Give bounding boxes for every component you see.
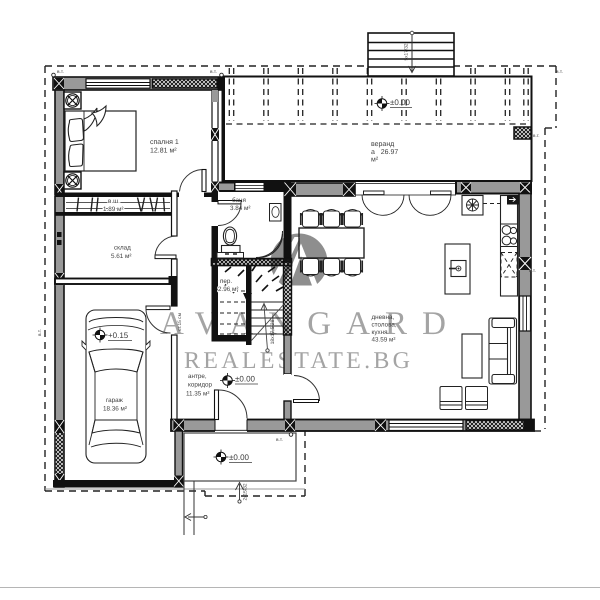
svg-text:+0.15: +0.15 xyxy=(108,331,129,340)
svg-text:±0.00: ±0.00 xyxy=(235,375,256,384)
svg-text:18.36 м²: 18.36 м² xyxy=(103,406,127,413)
svg-text:18x17,5/28: 18x17,5/28 xyxy=(270,319,276,344)
svg-text:в.т.: в.т. xyxy=(38,329,43,336)
svg-text:2x15/32: 2x15/32 xyxy=(243,483,249,500)
svg-text:в.ш.: в.ш. xyxy=(108,198,120,205)
svg-text:м²: м² xyxy=(371,157,379,164)
svg-text:в.т.: в.т. xyxy=(57,70,64,75)
svg-text:веранд: веранд xyxy=(371,141,394,148)
svg-text:а 26.97: а 26.97 xyxy=(371,149,398,156)
svg-text:в.т.: в.т. xyxy=(556,70,563,75)
svg-text:ст.15 см: ст.15 см xyxy=(177,313,183,331)
svg-text:12.81 м²: 12.81 м² xyxy=(150,148,177,155)
svg-text:баня: баня xyxy=(232,197,246,204)
svg-text:2.96 м²: 2.96 м² xyxy=(218,286,238,293)
svg-text:3.84 м²: 3.84 м² xyxy=(230,205,250,212)
svg-text:кухня: кухня xyxy=(372,329,388,336)
svg-text:REALESTATE.BG: REALESTATE.BG xyxy=(184,348,410,374)
svg-text:5x17/32: 5x17/32 xyxy=(404,43,410,60)
svg-text:5.61 м²: 5.61 м² xyxy=(111,253,131,260)
svg-text:столова,: столова, xyxy=(372,322,397,329)
svg-text:в.т.: в.т. xyxy=(210,70,217,75)
svg-text:в.т.: в.т. xyxy=(529,269,536,274)
svg-text:11.35 м²: 11.35 м² xyxy=(186,391,209,398)
svg-text:в.т.: в.т. xyxy=(276,438,283,443)
svg-text:±0.00: ±0.00 xyxy=(390,98,411,107)
svg-text:в.т.: в.т. xyxy=(533,133,540,138)
svg-text:дневна,: дневна, xyxy=(372,314,395,321)
svg-text:антре,: антре, xyxy=(188,373,207,380)
svg-text:1.89 м²: 1.89 м² xyxy=(103,206,123,213)
svg-text:пер.: пер. xyxy=(220,278,232,285)
svg-text:склад: склад xyxy=(114,245,131,252)
svg-text:±0.00: ±0.00 xyxy=(229,453,250,462)
svg-text:спалня 1: спалня 1 xyxy=(150,139,179,146)
svg-text:коридор: коридор xyxy=(188,382,213,389)
svg-text:гараж: гараж xyxy=(106,397,124,404)
svg-text:43.59 м²: 43.59 м² xyxy=(372,337,396,344)
